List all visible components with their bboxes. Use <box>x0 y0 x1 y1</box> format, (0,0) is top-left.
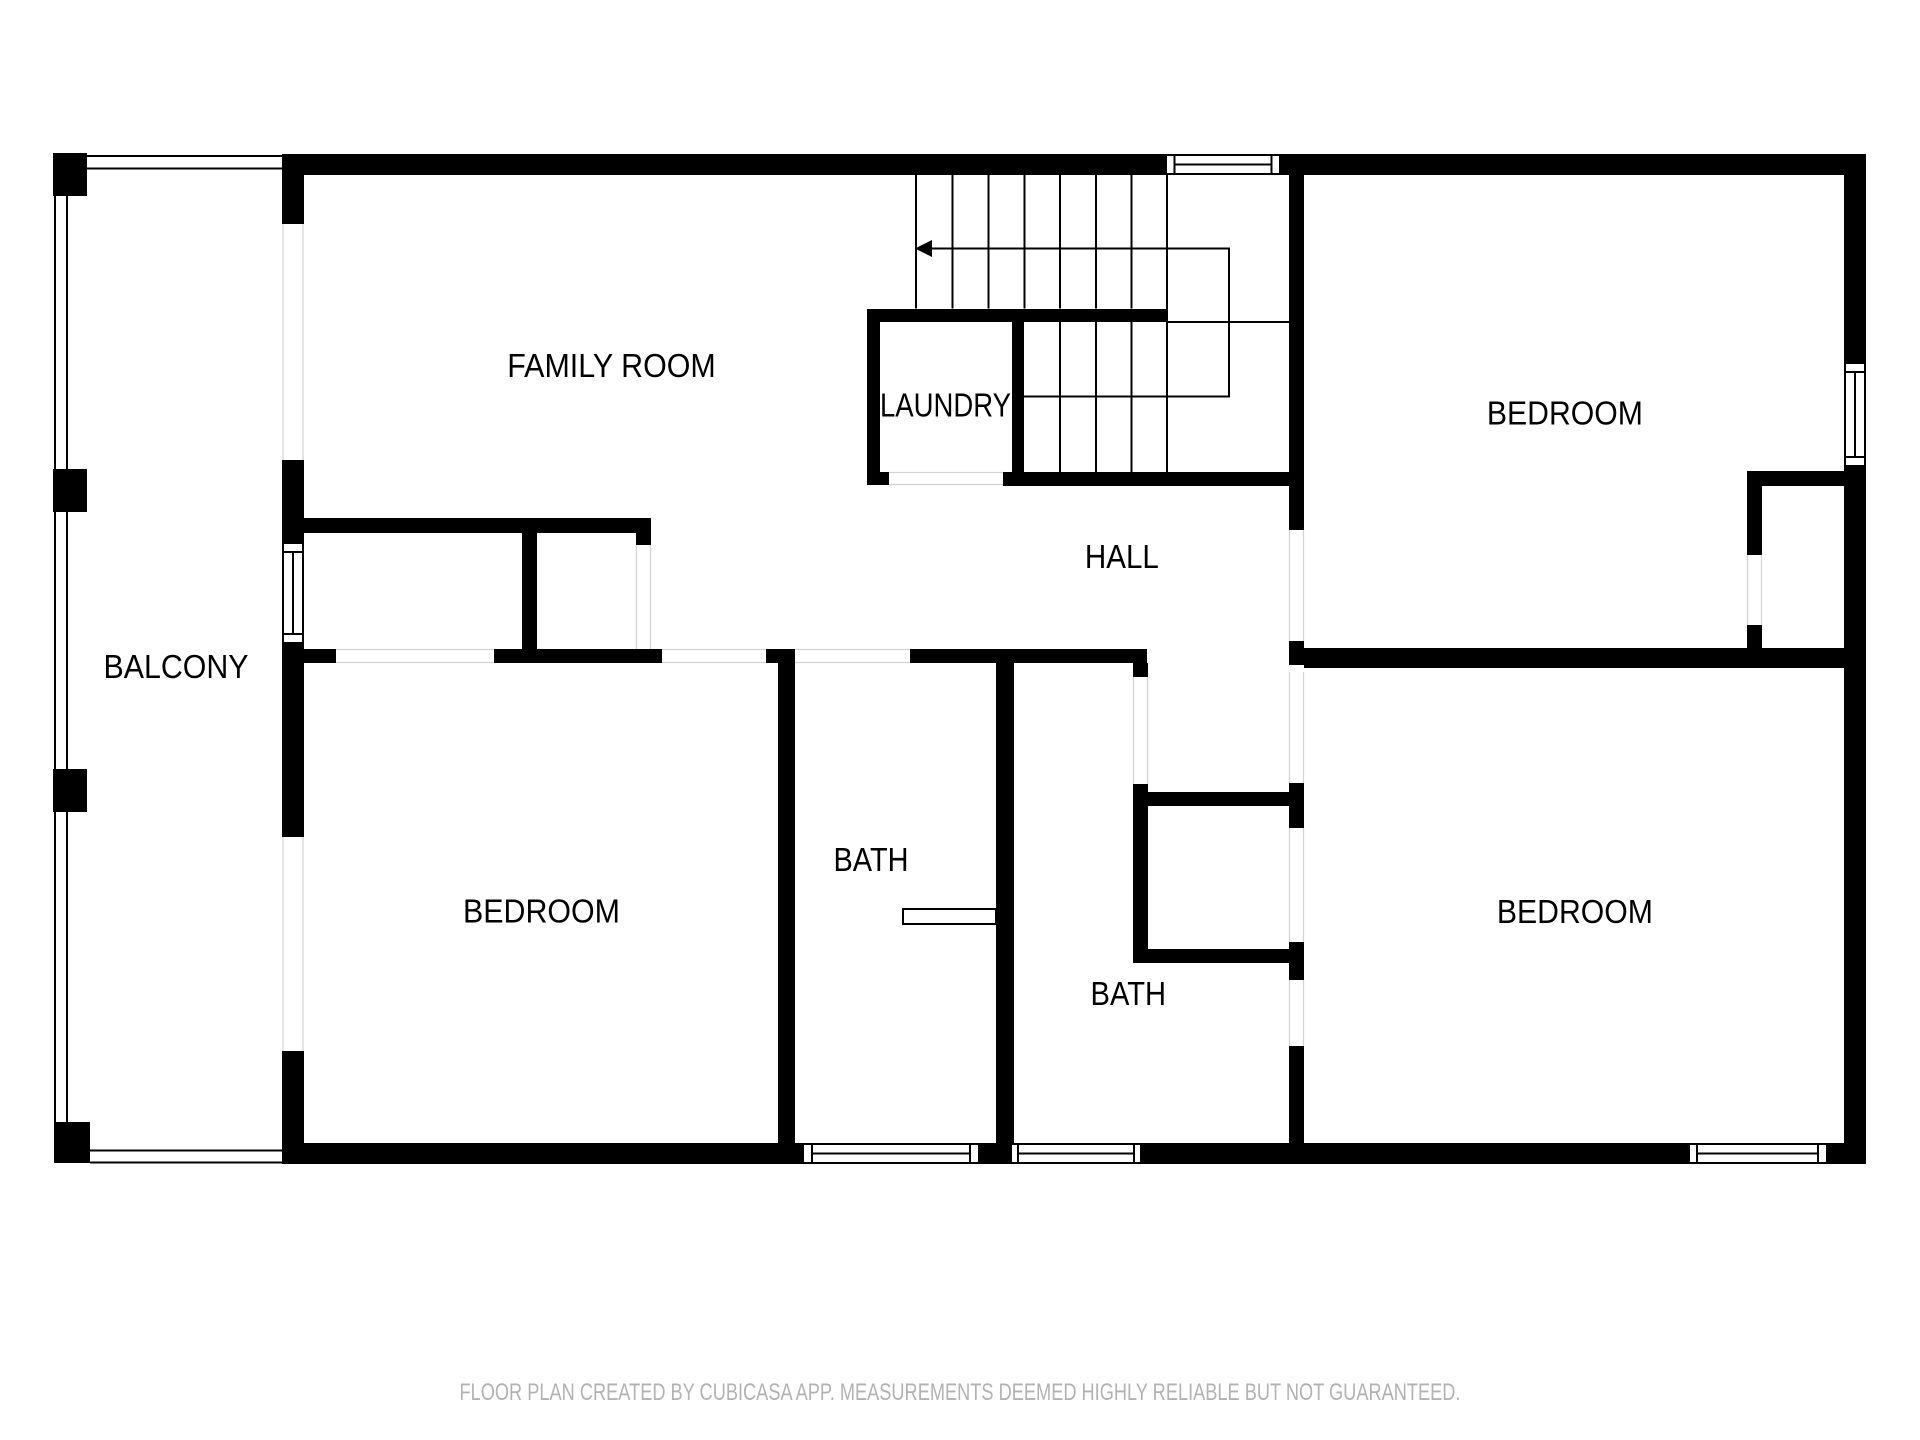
svg-text:BEDROOM: BEDROOM <box>1497 893 1653 930</box>
svg-text:FLOOR PLAN CREATED BY CUBICASA: FLOOR PLAN CREATED BY CUBICASA APP. MEAS… <box>460 1379 1461 1406</box>
svg-text:BATH: BATH <box>1091 975 1167 1012</box>
svg-text:BALCONY: BALCONY <box>104 648 249 685</box>
svg-text:BATH: BATH <box>834 841 909 878</box>
svg-text:FAMILY ROOM: FAMILY ROOM <box>507 347 716 384</box>
svg-text:BEDROOM: BEDROOM <box>1487 394 1643 431</box>
svg-text:LAUNDRY: LAUNDRY <box>880 387 1011 424</box>
svg-text:HALL: HALL <box>1085 538 1159 575</box>
svg-text:BEDROOM: BEDROOM <box>463 893 620 930</box>
